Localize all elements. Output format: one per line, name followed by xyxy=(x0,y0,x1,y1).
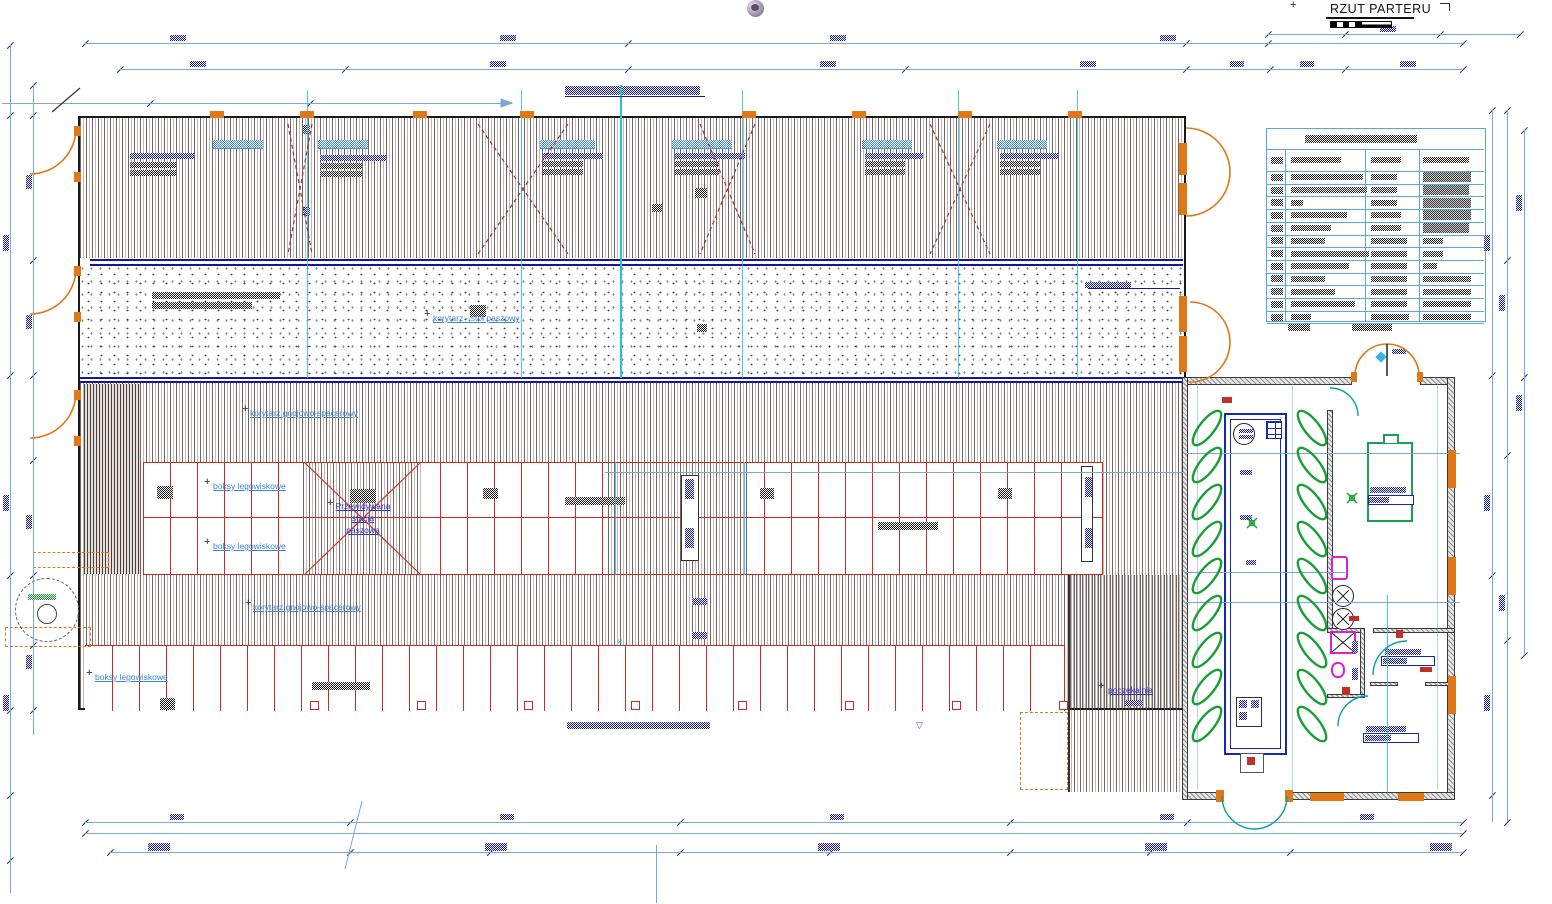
axis-line xyxy=(1185,602,1460,603)
wall xyxy=(1370,682,1398,686)
opening-mark xyxy=(1310,793,1344,801)
opening-mark xyxy=(1448,450,1456,488)
feed-fence-line xyxy=(90,264,1183,266)
milk-tank-cap xyxy=(1383,434,1399,443)
label-cubicles-upper: boksy legowiskowe xyxy=(213,482,286,491)
cad-text-bar-navy xyxy=(170,814,184,820)
table-text-bar xyxy=(1291,157,1341,163)
cad-text-bar-navy xyxy=(26,655,32,669)
stall-divider xyxy=(328,646,329,711)
stall-divider xyxy=(382,646,383,711)
stall-divider xyxy=(791,463,792,574)
cad-text-bar-navy xyxy=(3,235,9,251)
stall-divider xyxy=(224,463,225,574)
label-waiting-area: poczekalnia xyxy=(1108,686,1153,695)
cad-text-bar-navy xyxy=(1239,429,1253,433)
opening-mark xyxy=(1068,111,1082,118)
column-post xyxy=(310,701,319,710)
stall-divider xyxy=(868,646,869,711)
stall-divider xyxy=(247,646,248,711)
opening-mark xyxy=(74,436,81,446)
table-text-bar xyxy=(1271,199,1283,206)
cad-text-bar-black xyxy=(152,292,280,299)
anchor-cross: + xyxy=(424,309,430,319)
room-schedule-table xyxy=(1266,128,1486,322)
stall-divider xyxy=(1034,463,1035,574)
table-text-bar xyxy=(1291,276,1325,282)
cad-text-bar-lightblue xyxy=(997,140,1047,149)
cad-text-bar-navy xyxy=(1392,349,1406,354)
cad-text-bar-black xyxy=(675,169,719,175)
left-dense-corridor xyxy=(84,384,140,574)
cad-text-bar-navy xyxy=(1300,61,1314,67)
cad-text-bar-navy xyxy=(1484,235,1490,251)
red-symbol xyxy=(1420,667,1432,672)
anchor-cross: + xyxy=(327,498,333,508)
table-text-bar xyxy=(1423,263,1437,269)
feed-corridor-stipple xyxy=(80,267,1184,377)
feed-fence-line xyxy=(90,259,1183,261)
cad-text-bar-navy xyxy=(1085,528,1092,548)
table-text-bar xyxy=(1291,314,1311,320)
table-text-bar xyxy=(1423,198,1471,208)
page-title: RZUT PARTERU xyxy=(1330,2,1431,16)
table-text-bar xyxy=(1423,251,1443,257)
stall-divider xyxy=(845,463,846,574)
stall-divider xyxy=(1030,646,1031,711)
stall-divider xyxy=(1007,463,1008,574)
cad-text-bar-navy xyxy=(1246,560,1256,565)
column-post xyxy=(631,701,640,710)
table-text-bar xyxy=(1371,174,1397,180)
stall-divider xyxy=(895,646,896,711)
cad-text-bar-lightblue xyxy=(862,140,912,149)
stall-divider xyxy=(521,463,522,574)
axis-line-cyan xyxy=(1077,90,1078,378)
pit-grid-equipment xyxy=(1266,421,1282,439)
column-post xyxy=(417,701,426,710)
cad-text-bar-black xyxy=(865,169,905,175)
red-symbol xyxy=(1396,630,1403,638)
cad-text-bar-navy xyxy=(500,814,514,820)
label-walk-corridor-upper: korytarz gnojowo-spacerowy xyxy=(250,409,358,418)
opening-mark xyxy=(1285,790,1293,802)
opening-mark xyxy=(520,111,534,118)
cad-text-bar-navy xyxy=(1499,595,1505,611)
cad-text-bar-navy xyxy=(1239,700,1247,708)
cad-text-bar-navy xyxy=(1230,61,1244,67)
cad-text-bar-navy xyxy=(3,695,9,711)
cad-text-bar-black xyxy=(130,162,176,168)
cad-text-bar-black xyxy=(865,161,905,167)
axis-line-cyan xyxy=(615,462,616,575)
ref-bracket xyxy=(1440,3,1450,11)
cad-text-bar-navy xyxy=(865,153,923,159)
table-text-bar xyxy=(1423,314,1471,320)
table-text-bar xyxy=(1371,289,1407,295)
axis-line-cyan xyxy=(620,85,622,378)
stall-divider xyxy=(926,463,927,574)
table-text-bar xyxy=(1371,276,1407,282)
underline xyxy=(1088,288,1180,289)
label-cubicles-lower: boksy legowiskowe xyxy=(95,673,168,682)
cad-text-bar-navy xyxy=(1239,712,1247,720)
stall-divider xyxy=(899,463,900,574)
feed-station-line3: paszowa xyxy=(334,526,392,535)
cad-text-bar-black xyxy=(543,161,583,167)
stall-divider xyxy=(220,646,221,711)
axis-line-cyan xyxy=(307,90,308,378)
axis-line xyxy=(1185,572,1345,573)
cad-text-bar-black xyxy=(130,170,176,176)
cad-text-bar-navy xyxy=(1484,695,1490,711)
anchor-cross: + xyxy=(204,537,210,547)
cad-text-bar-navy xyxy=(567,722,710,729)
cad-text-bar-black xyxy=(320,163,362,169)
stall-divider xyxy=(274,646,275,711)
floor-drain xyxy=(1332,585,1354,607)
title-underline xyxy=(1326,17,1414,19)
table-text-bar xyxy=(1305,135,1417,143)
table-text-bar xyxy=(1271,225,1283,232)
red-symbol xyxy=(1247,757,1255,765)
table-text-bar xyxy=(1371,314,1409,320)
cad-text-bar-navy xyxy=(1369,497,1389,503)
opening-mark xyxy=(74,390,81,400)
cad-text-bar-navy xyxy=(685,528,694,548)
stall-divider xyxy=(598,646,599,711)
red-symbol xyxy=(1342,687,1350,695)
stall-divider xyxy=(494,463,495,574)
opening-mark xyxy=(1398,793,1424,801)
table-grid-line xyxy=(1267,285,1484,286)
opening-mark xyxy=(742,111,756,118)
cad-text-bar-black xyxy=(320,171,362,177)
axis-line xyxy=(1197,383,1198,790)
cad-text-bar-navy xyxy=(1400,61,1416,67)
planned-zone-dashed xyxy=(33,552,109,568)
dimension-line xyxy=(85,43,1463,44)
anchor-cross: + xyxy=(204,477,210,487)
cad-text-bar-navy xyxy=(830,814,844,820)
table-text-bar xyxy=(1371,187,1397,193)
table-text-bar xyxy=(1423,238,1443,244)
cad-text-bar-navy xyxy=(26,515,32,529)
feed-station-line1: Przewidywana xyxy=(334,502,392,511)
opening-mark xyxy=(74,172,81,182)
table-text-bar xyxy=(1371,157,1401,163)
axis-line xyxy=(1292,383,1293,790)
opening-mark xyxy=(1351,372,1357,382)
cad-text-bar-navy xyxy=(1516,195,1522,211)
opening-mark xyxy=(413,111,427,118)
cad-text-bar-black xyxy=(1000,161,1040,167)
stall-divider xyxy=(787,646,788,711)
cad-text-bar-navy xyxy=(1352,641,1358,653)
stall-divider xyxy=(922,646,923,711)
column-post xyxy=(1059,701,1068,710)
dimension-line xyxy=(110,852,1463,853)
cad-text-bar-navy xyxy=(1516,395,1522,411)
cad-text-bar-black xyxy=(675,161,719,167)
cad-text-bar-green xyxy=(28,594,56,600)
cad-text-bar-navy xyxy=(818,843,840,851)
underline xyxy=(565,96,705,97)
table-text-bar xyxy=(1371,251,1407,257)
cad-text-bar-navy xyxy=(692,598,707,605)
wall xyxy=(1373,628,1455,633)
table-text-bar xyxy=(1271,275,1283,282)
cad-text-bar-navy xyxy=(830,35,846,41)
anchor-cross: + xyxy=(1098,681,1104,691)
table-text-bar xyxy=(1371,212,1401,218)
blue-triangle-mark: ▽ xyxy=(916,720,923,731)
stall-band-lower xyxy=(85,645,1065,711)
stall-divider xyxy=(679,646,680,711)
pit-circle-equipment xyxy=(1233,423,1255,445)
stall-divider xyxy=(409,646,410,711)
wall xyxy=(1360,628,1365,698)
stall-divider xyxy=(170,463,171,574)
cad-text-bar-navy xyxy=(1240,470,1252,475)
cad-text-bar-black xyxy=(483,488,498,499)
stall-divider xyxy=(436,646,437,711)
table-text-bar xyxy=(1423,157,1469,163)
axis-line xyxy=(605,472,1185,473)
cad-text-bar-navy xyxy=(1484,495,1490,511)
milk-tank xyxy=(1367,442,1413,522)
table-text-bar xyxy=(1271,212,1283,219)
wall xyxy=(1182,377,1188,800)
cad-text-bar-navy xyxy=(685,479,694,499)
planned-silo-core xyxy=(37,604,57,624)
stall-divider xyxy=(301,646,302,711)
anchor-cross: + xyxy=(245,598,251,608)
stall-divider xyxy=(625,646,626,711)
anchor-cross: + xyxy=(242,404,248,414)
cad-text-bar-black xyxy=(543,169,583,175)
cad-text-bar-navy xyxy=(675,153,745,159)
stall-divider xyxy=(490,646,491,711)
stall-divider xyxy=(1003,646,1004,711)
stall-divider xyxy=(980,463,981,574)
opening-mark xyxy=(74,266,81,276)
table-text-bar xyxy=(1271,250,1283,257)
label-feed-station: Przewidywana stacja paszowa xyxy=(334,502,392,535)
floor-plan-canvas: RZUT PARTERU + xyxy=(0,0,1552,904)
stall-crossing xyxy=(608,463,747,574)
cad-text-bar-navy xyxy=(1085,477,1092,497)
cyan-diamond-mark xyxy=(1375,351,1386,362)
cad-text-bar-navy xyxy=(1360,814,1374,820)
dimension-line xyxy=(2,103,512,104)
table-footnote-bar xyxy=(1352,324,1392,331)
navigation-sphere-core xyxy=(751,4,759,11)
cad-text-bar-navy xyxy=(320,155,386,161)
stall-divider xyxy=(517,646,518,711)
axis-line xyxy=(1185,453,1460,454)
stall-divider xyxy=(872,463,873,574)
opening-mark xyxy=(1179,183,1187,215)
stall-divider xyxy=(652,646,653,711)
sink-fixture xyxy=(1331,556,1348,580)
cad-text-bar-lightblue xyxy=(540,140,595,149)
table-text-bar xyxy=(1423,301,1471,307)
cad-text-bar-navy xyxy=(500,35,516,41)
dimension-line xyxy=(656,845,657,903)
opening-mark xyxy=(1179,336,1187,372)
wall xyxy=(1185,377,1352,385)
cad-text-bar-lightblue xyxy=(318,140,368,149)
column-post xyxy=(845,701,854,710)
dimension-line xyxy=(1492,110,1493,822)
toilet xyxy=(1331,662,1345,678)
label-cubicles-mid: boksy legowiskowe xyxy=(213,542,286,551)
axis-line-cyan xyxy=(742,90,743,378)
table-text-bar xyxy=(1423,210,1471,220)
column-post xyxy=(952,701,961,710)
stall-divider xyxy=(355,646,356,711)
anchor-cross: + xyxy=(86,668,92,678)
axis-line-cyan xyxy=(744,462,745,575)
cad-text-bar-black xyxy=(312,682,370,690)
stall-divider xyxy=(1061,463,1062,574)
stall-divider xyxy=(764,463,765,574)
stall-divider xyxy=(575,463,576,574)
cad-text-bar-navy xyxy=(1239,435,1253,439)
stall-divider xyxy=(602,463,603,574)
cad-text-bar-navy xyxy=(490,61,506,67)
dimension-line xyxy=(33,85,34,735)
cad-text-bar-navy xyxy=(1251,700,1259,708)
ref-cross: + xyxy=(1290,0,1296,10)
opening-mark xyxy=(1417,372,1423,382)
stall-divider xyxy=(706,646,707,711)
stall-divider xyxy=(544,646,545,711)
table-text-bar xyxy=(1291,200,1303,206)
table-text-bar xyxy=(1271,314,1283,321)
cad-text-bar-navy xyxy=(26,175,32,189)
dimension-line xyxy=(120,69,1463,70)
opening-mark xyxy=(958,111,972,118)
dimension-line xyxy=(85,822,1463,823)
stall-divider xyxy=(814,646,815,711)
corner-break-mark xyxy=(52,88,80,112)
cad-text-bar-navy xyxy=(1125,700,1143,706)
table-text-bar xyxy=(1271,288,1283,295)
table-text-bar xyxy=(1423,172,1471,182)
red-symbol xyxy=(1349,616,1359,621)
opening-mark xyxy=(1216,790,1224,802)
stall-divider xyxy=(251,463,252,574)
stall-band-centerline xyxy=(143,517,1103,518)
cad-text-bar-navy xyxy=(1160,814,1174,820)
stall-divider xyxy=(953,463,954,574)
stall-divider xyxy=(193,646,194,711)
table-text-bar xyxy=(1423,276,1471,282)
stall-divider xyxy=(463,646,464,711)
cad-text-bar-navy xyxy=(485,843,507,851)
cad-text-bar-navy xyxy=(1499,295,1505,311)
table-text-bar xyxy=(1291,212,1347,218)
stall-divider xyxy=(976,646,977,711)
cad-text-bar-navy xyxy=(1080,61,1096,67)
cad-text-bar-black xyxy=(652,204,662,212)
cad-text-bar-navy xyxy=(692,632,707,639)
stall-divider xyxy=(197,463,198,574)
cad-text-bar-navy xyxy=(148,843,170,851)
table-text-bar xyxy=(1271,187,1283,194)
cad-text-bar-navy xyxy=(1352,668,1358,680)
table-text-bar xyxy=(1371,225,1401,231)
cad-text-bar-navy xyxy=(1145,843,1167,851)
cad-text-bar-lightblue xyxy=(672,140,732,149)
table-grid-line xyxy=(1267,260,1484,261)
red-symbol xyxy=(1222,397,1232,403)
stall-divider xyxy=(733,646,734,711)
cad-text-bar-navy xyxy=(26,315,32,329)
stall-divider xyxy=(440,463,441,574)
opening-mark xyxy=(300,111,314,118)
opening-mark xyxy=(1448,676,1456,714)
opening-mark xyxy=(74,312,81,322)
label-feed-corridor: korytarz - stół paszowy xyxy=(433,314,519,323)
column-post xyxy=(738,701,747,710)
table-text-bar xyxy=(1291,301,1355,307)
cad-text-bar-black xyxy=(157,486,173,499)
table-text-bar xyxy=(1291,174,1363,180)
cad-text-bar-black xyxy=(1000,169,1040,175)
table-text-bar xyxy=(1291,187,1367,193)
dimension-line xyxy=(85,833,1463,834)
table-grid-line xyxy=(1267,273,1484,274)
cad-text-bar-navy xyxy=(170,35,186,41)
opening-mark xyxy=(1448,557,1456,595)
table-text-bar xyxy=(1271,174,1283,181)
table-text-bar xyxy=(1371,263,1407,269)
cad-text-bar-navy xyxy=(130,153,194,159)
cad-text-bar-navy xyxy=(1430,843,1452,851)
cad-text-bar-navy xyxy=(3,495,9,511)
cad-text-bar-navy xyxy=(1000,153,1058,159)
cad-text-bar-navy xyxy=(1366,726,1406,732)
table-text-bar xyxy=(1371,238,1407,244)
cad-text-bar-black xyxy=(565,497,625,505)
axis-line-cyan xyxy=(958,90,959,378)
cad-text-bar-black xyxy=(878,522,938,530)
cad-text-bar-black xyxy=(998,488,1012,499)
table-text-bar xyxy=(1291,238,1325,244)
cad-text-bar-black xyxy=(760,488,774,499)
opening-mark xyxy=(852,111,866,118)
waiting-area-hatch xyxy=(1068,575,1182,792)
table-text-bar xyxy=(1291,225,1331,231)
dimension-line xyxy=(1507,110,1508,822)
table-text-bar xyxy=(1291,289,1335,295)
table-text-bar xyxy=(1291,251,1369,257)
cad-text-bar-black xyxy=(697,324,707,332)
table-text-bar xyxy=(1271,237,1283,244)
cad-text-bar-navy xyxy=(543,153,603,159)
cad-text-bar-navy xyxy=(1385,649,1421,655)
cad-text-bar-navy xyxy=(190,61,206,67)
cad-text-bar-navy xyxy=(1370,487,1406,493)
opening-mark xyxy=(210,111,224,118)
cad-text-bar-black xyxy=(160,698,175,710)
planned-zone-dashed xyxy=(1020,712,1068,790)
stall-divider xyxy=(571,646,572,711)
stall-divider xyxy=(548,463,549,574)
